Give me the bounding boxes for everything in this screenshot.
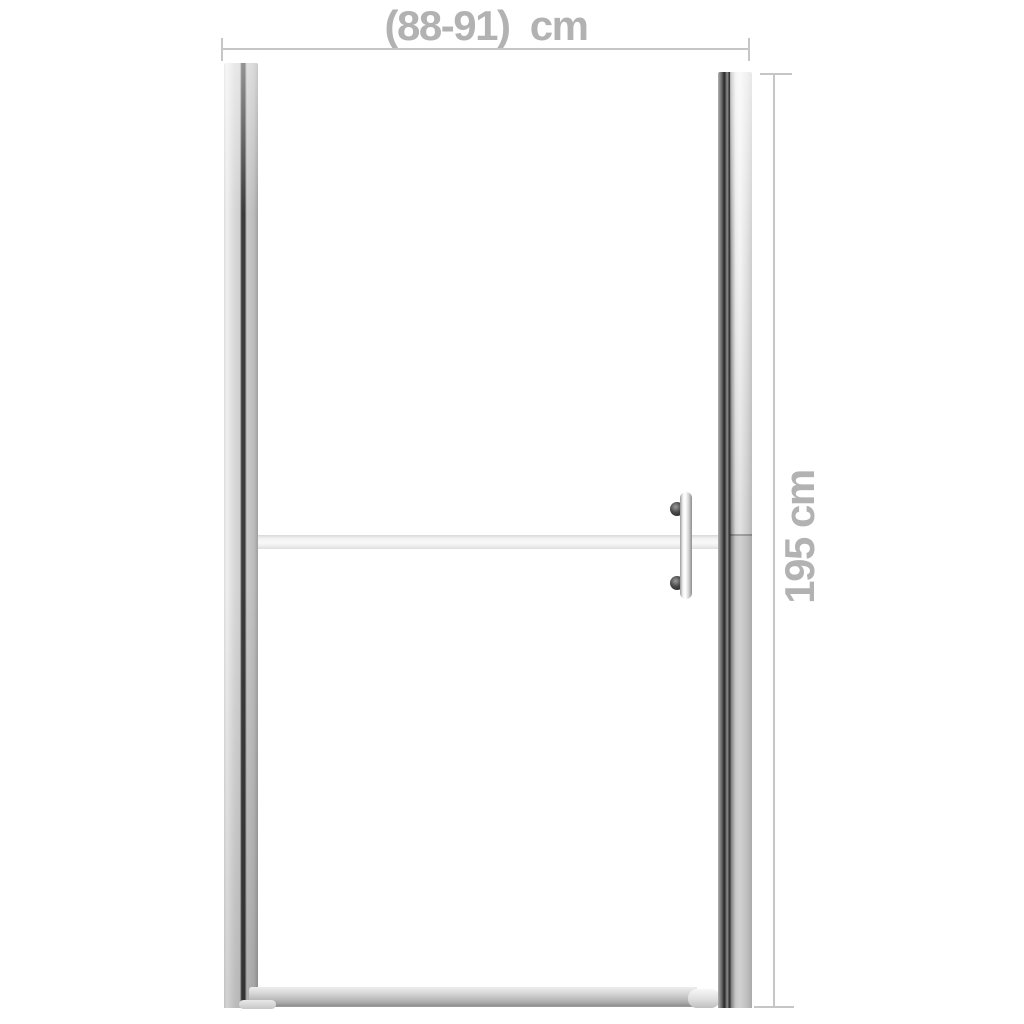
right-frame-post-upper-sheen bbox=[730, 72, 752, 534]
shower-door-dimension-diagram: (88-91) cm 195 cm bbox=[0, 0, 1024, 1024]
bottom-rail-foot bbox=[239, 1000, 276, 1009]
right-frame-post bbox=[718, 72, 752, 1008]
width-dimension-line bbox=[222, 48, 750, 50]
height-dimension-label: 195 cm bbox=[778, 427, 822, 647]
width-dimension-label: (88-91) cm bbox=[222, 4, 750, 48]
height-dimension-line bbox=[773, 74, 775, 1007]
frosted-glass-band bbox=[258, 535, 720, 549]
bottom-rail bbox=[249, 987, 697, 1007]
right-frame-post-lower-segment bbox=[730, 534, 752, 1008]
bottom-rail-endcap bbox=[688, 989, 720, 1008]
height-dimension-cap-top bbox=[760, 73, 792, 75]
left-frame-post bbox=[224, 63, 258, 1008]
width-dimension-tick-right bbox=[748, 38, 750, 61]
height-dimension-cap-bottom bbox=[754, 1006, 794, 1008]
door-handle-bar bbox=[680, 492, 692, 599]
width-dimension-tick-left bbox=[221, 38, 223, 61]
